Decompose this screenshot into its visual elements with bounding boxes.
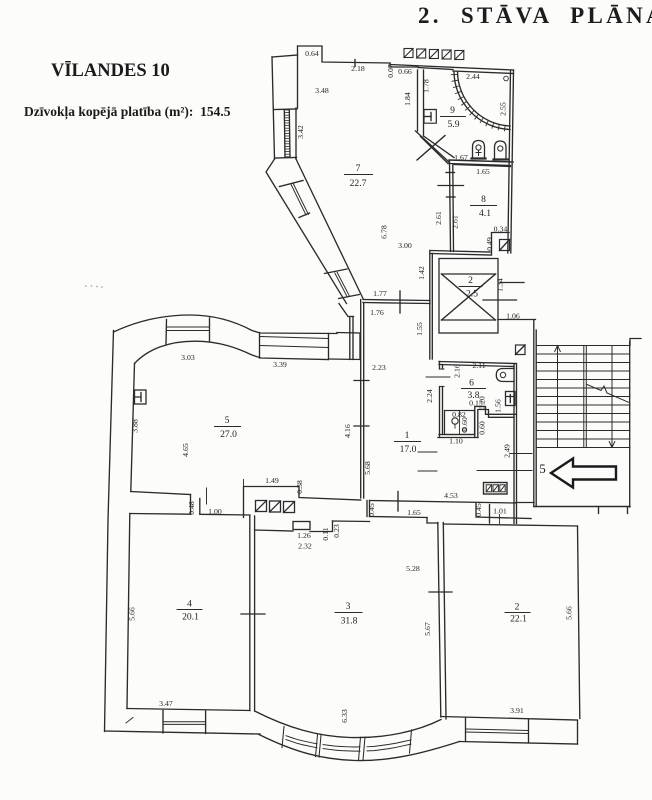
svg-text:1.56: 1.56 bbox=[494, 399, 503, 413]
svg-text:3.47: 3.47 bbox=[159, 699, 173, 708]
svg-text:1: 1 bbox=[405, 430, 410, 441]
svg-text:9: 9 bbox=[450, 105, 455, 116]
svg-text:20.1: 20.1 bbox=[182, 612, 199, 623]
svg-text:3: 3 bbox=[346, 601, 351, 612]
svg-text:0.49: 0.49 bbox=[485, 237, 494, 251]
svg-text:1.00: 1.00 bbox=[208, 507, 222, 516]
svg-text:7: 7 bbox=[356, 163, 361, 174]
svg-text:3.88: 3.88 bbox=[131, 419, 140, 433]
svg-text:5.28: 5.28 bbox=[406, 564, 420, 573]
svg-text:1.77: 1.77 bbox=[373, 289, 387, 298]
svg-text:6.33: 6.33 bbox=[340, 709, 349, 723]
svg-text:17.0: 17.0 bbox=[400, 444, 417, 455]
svg-text:1.10: 1.10 bbox=[449, 437, 463, 446]
svg-text:1.76: 1.76 bbox=[370, 308, 384, 317]
svg-text:2.5: 2.5 bbox=[466, 289, 478, 300]
svg-text:1.26: 1.26 bbox=[297, 531, 311, 540]
svg-text:0.60: 0.60 bbox=[478, 421, 487, 435]
svg-text:1.49: 1.49 bbox=[265, 476, 279, 485]
svg-text:5: 5 bbox=[539, 461, 546, 476]
svg-text:5.9: 5.9 bbox=[448, 119, 460, 130]
svg-text:0.66: 0.66 bbox=[398, 67, 412, 76]
svg-text:0.64: 0.64 bbox=[305, 49, 319, 58]
svg-text:8: 8 bbox=[481, 194, 486, 205]
svg-text:3.91: 3.91 bbox=[510, 706, 524, 715]
svg-text:5.67: 5.67 bbox=[423, 622, 432, 636]
svg-text:1.01: 1.01 bbox=[493, 507, 507, 516]
svg-text:4.65: 4.65 bbox=[181, 443, 190, 457]
svg-text:6: 6 bbox=[469, 378, 474, 389]
svg-text:0.38: 0.38 bbox=[295, 480, 304, 494]
svg-text:0.48: 0.48 bbox=[187, 501, 196, 515]
svg-text:2.55: 2.55 bbox=[499, 102, 508, 116]
svg-text:0.11: 0.11 bbox=[321, 527, 330, 540]
svg-text:0.60: 0.60 bbox=[460, 417, 469, 431]
svg-text:3.48: 3.48 bbox=[315, 86, 329, 95]
svg-text:3.42: 3.42 bbox=[296, 125, 305, 139]
svg-text:5.68: 5.68 bbox=[363, 461, 372, 475]
svg-text:2.24: 2.24 bbox=[425, 389, 434, 403]
svg-text:4.16: 4.16 bbox=[343, 424, 352, 438]
svg-text:3.39: 3.39 bbox=[273, 360, 287, 369]
svg-text:0.45: 0.45 bbox=[474, 503, 483, 517]
svg-text:4.53: 4.53 bbox=[444, 491, 458, 500]
svg-text:1.06: 1.06 bbox=[506, 312, 520, 321]
svg-text:1.65: 1.65 bbox=[407, 508, 421, 517]
svg-text:3.00: 3.00 bbox=[398, 241, 412, 250]
svg-text:1.42: 1.42 bbox=[417, 266, 426, 280]
svg-text:0.20: 0.20 bbox=[478, 396, 487, 410]
svg-text:1.55: 1.55 bbox=[415, 322, 424, 336]
svg-text:0.07: 0.07 bbox=[386, 64, 395, 78]
svg-text:2.32: 2.32 bbox=[298, 542, 312, 551]
svg-text:0.23: 0.23 bbox=[332, 524, 341, 538]
svg-text:31.8: 31.8 bbox=[341, 616, 358, 627]
svg-text:27.0: 27.0 bbox=[220, 429, 237, 440]
svg-text:0.34: 0.34 bbox=[494, 225, 508, 234]
svg-text:0.45: 0.45 bbox=[367, 503, 376, 517]
svg-text:22.1: 22.1 bbox=[510, 614, 527, 625]
svg-text:2.18: 2.18 bbox=[351, 64, 365, 73]
svg-text:2: 2 bbox=[468, 275, 473, 286]
svg-text:1.34: 1.34 bbox=[496, 278, 505, 292]
svg-text:2.61: 2.61 bbox=[434, 211, 443, 225]
svg-text:2.49: 2.49 bbox=[503, 444, 512, 458]
svg-text:2.61: 2.61 bbox=[451, 215, 460, 229]
svg-text:2.44: 2.44 bbox=[466, 72, 480, 81]
svg-text:5.66: 5.66 bbox=[128, 607, 137, 621]
svg-text:3.03: 3.03 bbox=[181, 353, 195, 362]
svg-text:1.65: 1.65 bbox=[476, 167, 490, 176]
svg-text:5.66: 5.66 bbox=[565, 606, 574, 620]
svg-text:5: 5 bbox=[225, 415, 230, 426]
svg-text:4: 4 bbox=[187, 599, 192, 610]
svg-text:6.78: 6.78 bbox=[380, 225, 389, 239]
svg-text:22.7: 22.7 bbox=[350, 178, 367, 189]
svg-text:1.78: 1.78 bbox=[422, 79, 431, 93]
svg-text:2.23: 2.23 bbox=[372, 363, 386, 372]
svg-text:4.1: 4.1 bbox=[479, 208, 491, 219]
svg-text:2.11: 2.11 bbox=[472, 361, 485, 370]
svg-text:2: 2 bbox=[515, 602, 520, 613]
svg-text:1.67: 1.67 bbox=[454, 153, 468, 162]
svg-text:1.84: 1.84 bbox=[403, 92, 412, 106]
svg-text:2.16: 2.16 bbox=[453, 364, 462, 378]
